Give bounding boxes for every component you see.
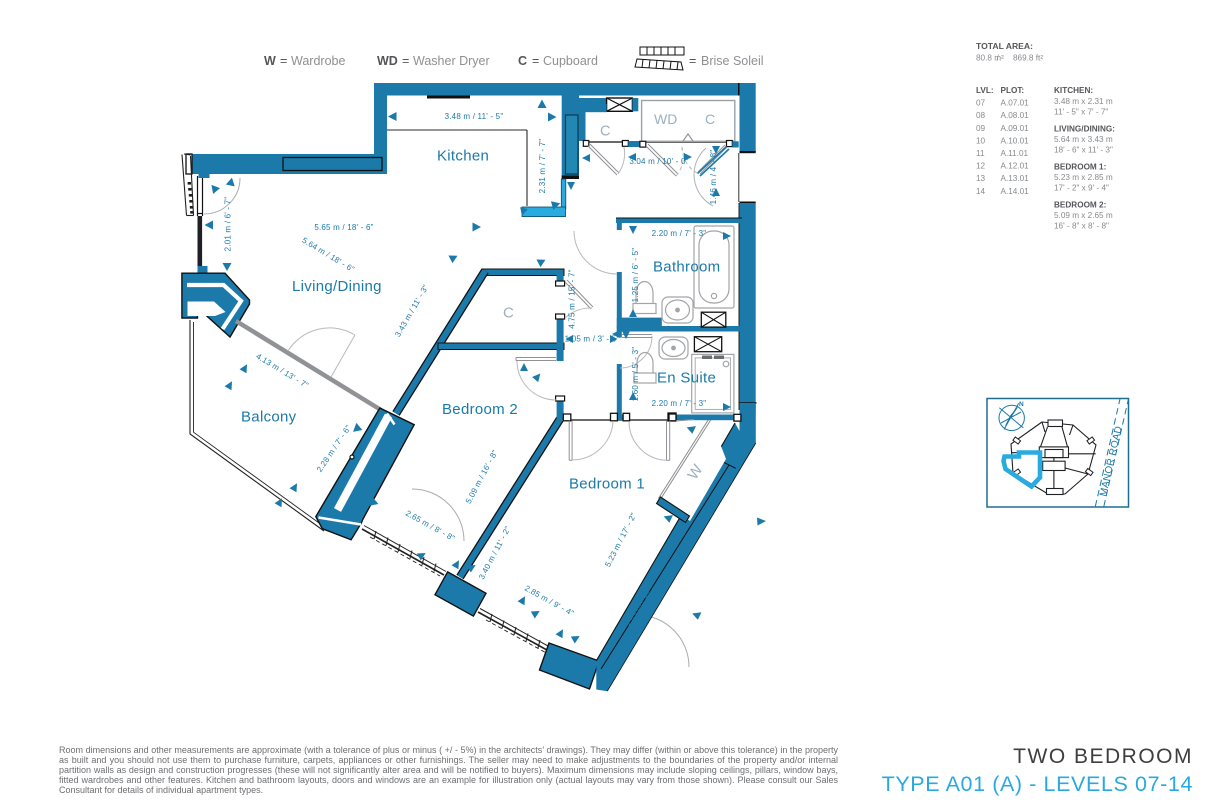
svg-text:KITCHEN:: KITCHEN: bbox=[1054, 86, 1093, 95]
svg-text:07: 07 bbox=[976, 99, 986, 108]
svg-text:=: = bbox=[689, 54, 696, 68]
svg-text:A.11.01: A.11.01 bbox=[1001, 149, 1029, 158]
svg-text:BEDROOM 2:: BEDROOM 2: bbox=[1054, 201, 1106, 210]
svg-text:Brise Soleil: Brise Soleil bbox=[701, 54, 764, 68]
svg-text:W: W bbox=[264, 54, 276, 68]
svg-text:TYPE A01 (A) - LEVELS 07-14: TYPE A01 (A) - LEVELS 07-14 bbox=[882, 772, 1193, 796]
svg-text:TOTAL AREA:: TOTAL AREA: bbox=[976, 41, 1033, 51]
svg-text:5.65 m / 18' - 6": 5.65 m / 18' - 6" bbox=[314, 223, 373, 232]
svg-text:A.12.01: A.12.01 bbox=[1001, 162, 1030, 171]
svg-text:80.8 m²: 80.8 m² bbox=[976, 54, 1004, 63]
svg-text:C: C bbox=[705, 111, 715, 127]
svg-text:Cupboard: Cupboard bbox=[543, 54, 598, 68]
svg-text:12: 12 bbox=[976, 162, 986, 171]
svg-text:1.46 m / 4' - 8": 1.46 m / 4' - 8" bbox=[709, 150, 718, 205]
svg-text:5.64 m x 3.43 m: 5.64 m x 3.43 m bbox=[1054, 135, 1113, 144]
svg-text:11' - 5" x 7' - 7": 11' - 5" x 7' - 7" bbox=[1054, 108, 1108, 117]
svg-text:3.04 m / 10' - 0": 3.04 m / 10' - 0" bbox=[629, 157, 688, 166]
svg-text:08: 08 bbox=[976, 111, 986, 120]
svg-text:Wardrobe: Wardrobe bbox=[291, 54, 345, 68]
svg-text:16' - 8" x 8' - 8": 16' - 8" x 8' - 8" bbox=[1054, 222, 1109, 231]
svg-text:14: 14 bbox=[976, 187, 986, 196]
svg-text:Bedroom 1: Bedroom 1 bbox=[569, 476, 645, 493]
svg-text:3.48 m / 11' - 5": 3.48 m / 11' - 5" bbox=[445, 112, 504, 121]
svg-text:A.14.01: A.14.01 bbox=[1001, 187, 1030, 196]
svg-text:TWO BEDROOM: TWO BEDROOM bbox=[1013, 745, 1193, 768]
svg-text:2.20 m / 7' - 3": 2.20 m / 7' - 3" bbox=[652, 399, 707, 408]
svg-text:=: = bbox=[402, 54, 409, 68]
svg-text:WD: WD bbox=[654, 111, 677, 127]
svg-text:Balcony: Balcony bbox=[241, 409, 297, 426]
svg-text:Living/Dining: Living/Dining bbox=[292, 278, 382, 295]
svg-text:A.13.01: A.13.01 bbox=[1001, 174, 1030, 183]
svg-text:1.25 m / 6' - 5": 1.25 m / 6' - 5" bbox=[631, 248, 640, 303]
svg-text:18' - 6" x 11' - 3": 18' - 6" x 11' - 3" bbox=[1054, 146, 1113, 155]
svg-text:10: 10 bbox=[976, 136, 986, 145]
svg-text:A.08.01: A.08.01 bbox=[1001, 111, 1030, 120]
svg-text:En Suite: En Suite bbox=[657, 370, 716, 387]
svg-text:LVL:: LVL: bbox=[976, 86, 994, 95]
svg-text:=: = bbox=[532, 54, 539, 68]
svg-text:LIVING/DINING:: LIVING/DINING: bbox=[1054, 125, 1115, 134]
svg-text:1.60 m / 5' - 3": 1.60 m / 5' - 3" bbox=[631, 347, 640, 402]
svg-text:09: 09 bbox=[976, 124, 986, 133]
svg-text:5.09 m x 2.65 m: 5.09 m x 2.65 m bbox=[1054, 211, 1113, 220]
svg-text:Washer Dryer: Washer Dryer bbox=[413, 54, 490, 68]
svg-text:11: 11 bbox=[976, 149, 985, 158]
svg-text:3.48 m x 2.31 m: 3.48 m x 2.31 m bbox=[1054, 97, 1113, 106]
svg-text:4.75 m / 15' - 7": 4.75 m / 15' - 7" bbox=[568, 269, 577, 328]
svg-text:A.09.01: A.09.01 bbox=[1001, 124, 1030, 133]
svg-text:869.8 ft²: 869.8 ft² bbox=[1013, 54, 1043, 63]
svg-text:2.31 m / 7' - 7": 2.31 m / 7' - 7" bbox=[538, 139, 547, 194]
svg-text:C: C bbox=[518, 54, 527, 68]
svg-text:A.07.01: A.07.01 bbox=[1001, 99, 1030, 108]
svg-text:Kitchen: Kitchen bbox=[437, 148, 489, 165]
svg-text:N: N bbox=[1019, 401, 1024, 408]
svg-text:C: C bbox=[503, 305, 514, 322]
svg-text:Bathroom: Bathroom bbox=[653, 259, 720, 276]
svg-text:2.20 m / 7' - 3": 2.20 m / 7' - 3" bbox=[652, 229, 707, 238]
svg-text:2.01 m / 6' - 7": 2.01 m / 6' - 7" bbox=[224, 197, 233, 252]
svg-text:13: 13 bbox=[976, 174, 986, 183]
svg-text:17' - 2" x 9' - 4": 17' - 2" x 9' - 4" bbox=[1054, 184, 1109, 193]
svg-text:BEDROOM 1:: BEDROOM 1: bbox=[1054, 163, 1106, 172]
svg-text:Bedroom 2: Bedroom 2 bbox=[442, 401, 518, 418]
svg-text:WD: WD bbox=[377, 54, 398, 68]
svg-text:5.23 m x 2.85 m: 5.23 m x 2.85 m bbox=[1054, 173, 1113, 182]
svg-text:A.10.01: A.10.01 bbox=[1001, 136, 1030, 145]
svg-text:C: C bbox=[600, 124, 610, 140]
svg-text:PLOT:: PLOT: bbox=[1001, 86, 1025, 95]
svg-text:=: = bbox=[280, 54, 287, 68]
